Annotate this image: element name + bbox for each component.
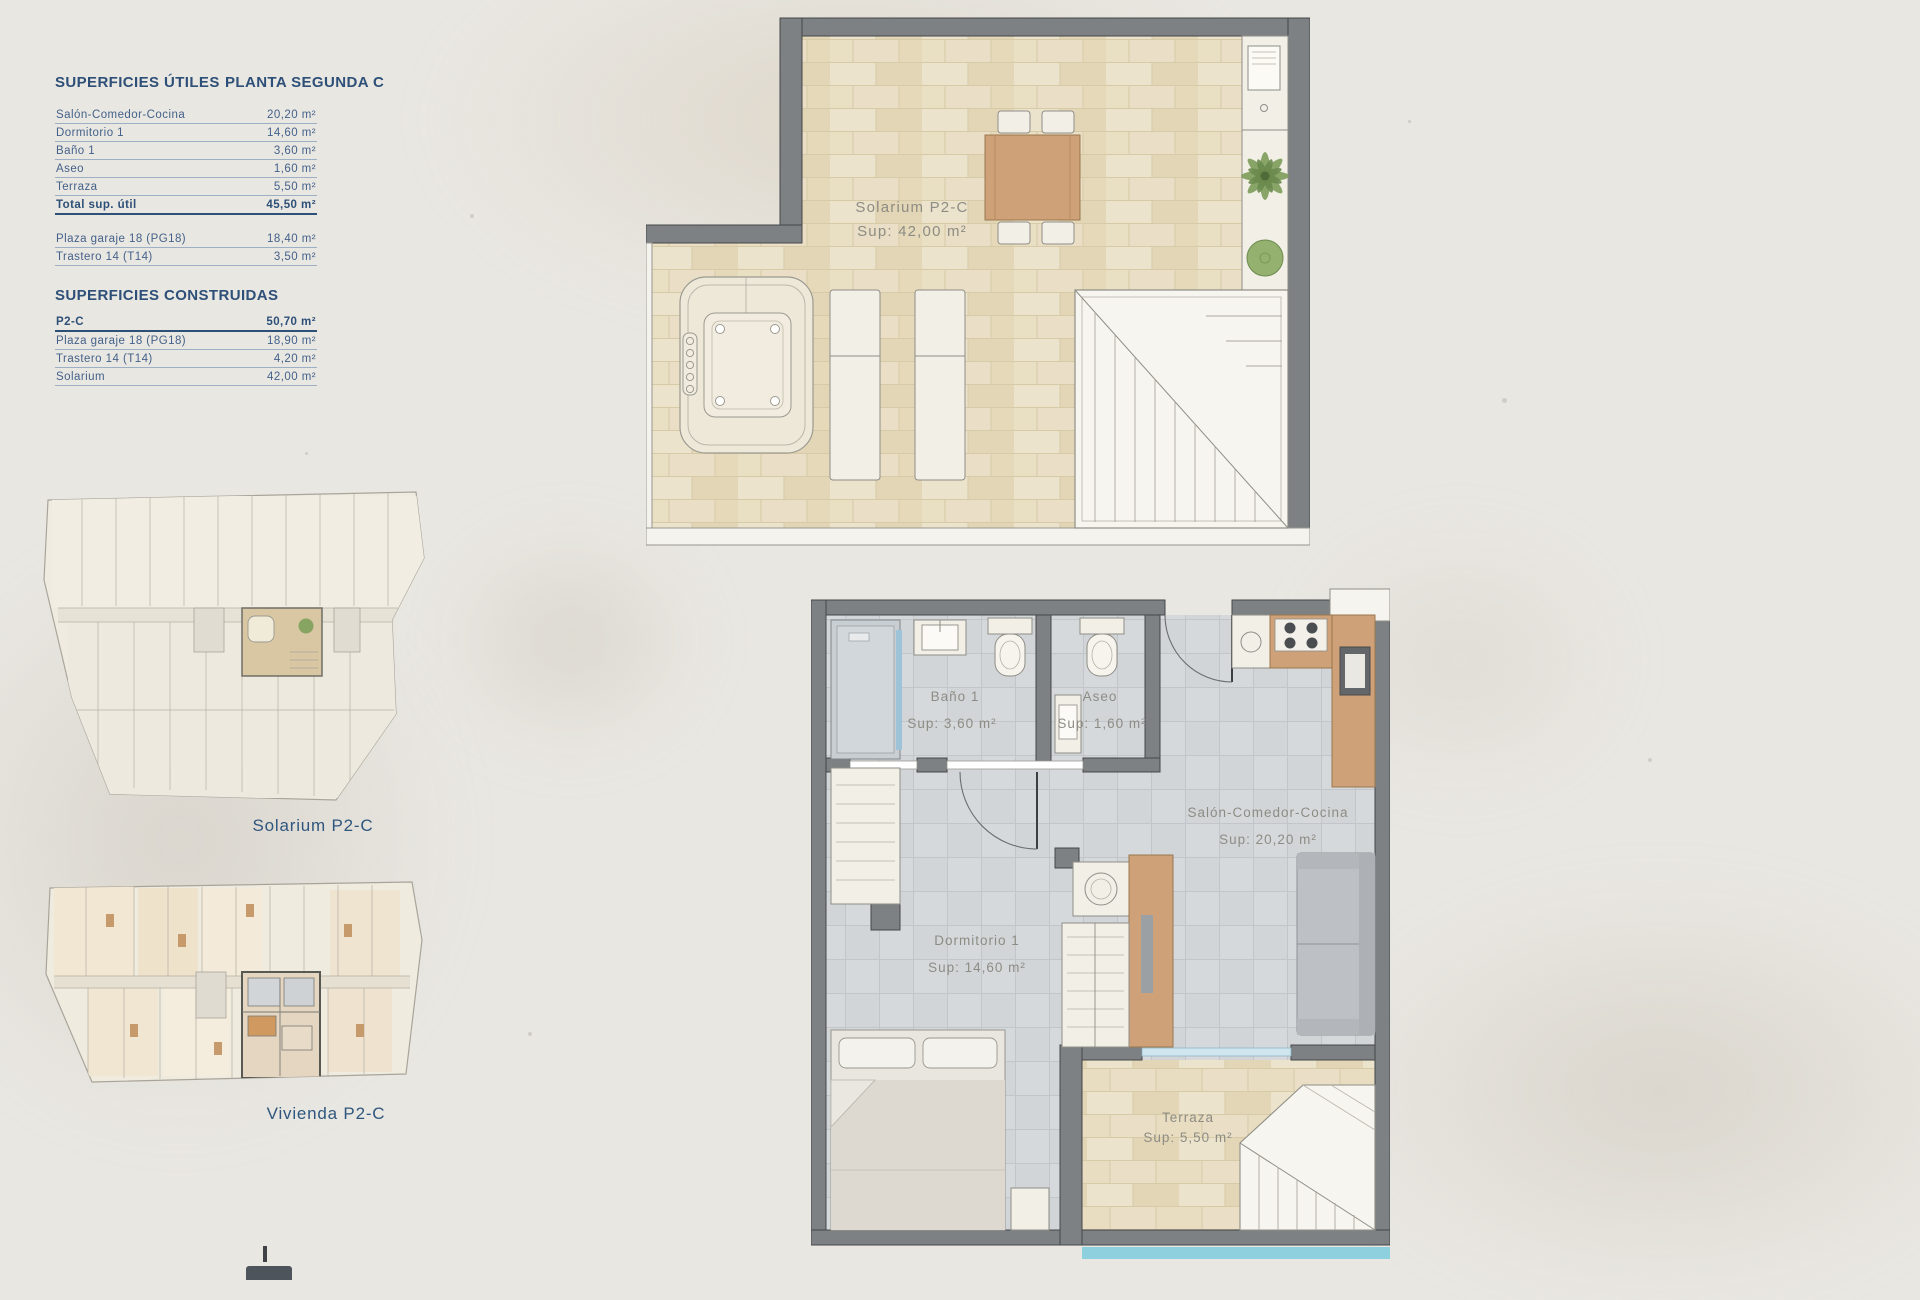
row-label: Terraza (56, 181, 98, 193)
wall (780, 18, 802, 243)
solarium-room-name: Solarium P2-C (855, 199, 968, 216)
stair-core (194, 608, 224, 652)
chair-icon (1042, 111, 1074, 133)
salon-room-name: Salón-Comedor-Cocina (1187, 805, 1348, 820)
staircase (1075, 290, 1288, 528)
speckle (305, 452, 308, 455)
row-value: 5,50 m² (274, 181, 316, 193)
area-row: Baño 1 3,60 m² (55, 142, 317, 160)
speckle (528, 1032, 532, 1036)
chair-icon (1042, 222, 1074, 244)
wall (1083, 758, 1160, 772)
row-label: P2-C (56, 316, 84, 328)
stair-core (334, 608, 360, 652)
table-title: SUPERFICIES ÚTILES (55, 74, 220, 91)
row-value: 3,60 m² (274, 145, 316, 157)
wall (1036, 615, 1051, 765)
row-value: 50,70 m² (266, 316, 316, 328)
bed (831, 1030, 1005, 1230)
bano-room-name: Baño 1 (931, 689, 980, 704)
chair-icon (998, 111, 1030, 133)
planter (1241, 130, 1289, 300)
cooktop (1270, 615, 1332, 668)
wall (811, 600, 1165, 615)
mini-plant-icon (299, 619, 314, 634)
area-row: Dormitorio 1 14,60 m² (55, 124, 317, 142)
salon-room-sup: Sup: 20,20 m² (1219, 832, 1317, 847)
row-value: 45,50 m² (266, 199, 316, 211)
parapet-wall (646, 528, 1310, 545)
aseo-room-sup: Sup: 1,60 m² (1057, 716, 1146, 731)
apartment-floorplan: Baño 1 Sup: 3,60 m² Aseo Sup: 1,60 m² Sa… (811, 585, 1390, 1280)
jet-icon (771, 325, 780, 334)
row-label: Aseo (56, 163, 84, 175)
shower-glass (896, 630, 902, 750)
terraza-room-sup: Sup: 5,50 m² (1143, 1130, 1232, 1145)
row-label: Trastero 14 (T14) (56, 251, 153, 263)
page-mark (263, 1246, 267, 1262)
row-value: 18,40 m² (267, 233, 316, 245)
wall (871, 904, 900, 930)
area-row: Trastero 14 (T14) 4,20 m² (55, 350, 317, 368)
hot-tub (680, 277, 813, 453)
mini-plan-vivienda-label: Vivienda P2-C (216, 1104, 436, 1124)
row-value: 20,20 m² (267, 109, 316, 121)
kitchen-island (1332, 615, 1375, 787)
speckle (1502, 398, 1507, 403)
sofa (1297, 853, 1375, 1035)
areas-table-header: SUPERFICIES ÚTILES PLANTA SEGUNDA C (55, 74, 385, 98)
pillow (839, 1038, 915, 1068)
plan-title: PLANTA SEGUNDA C (225, 74, 384, 91)
pool-edge (1082, 1247, 1390, 1259)
bush-plant-icon (1247, 240, 1283, 276)
wall (811, 1230, 1390, 1245)
row-value: 3,50 m² (274, 251, 316, 263)
area-row: Salón-Comedor-Cocina 20,20 m² (55, 106, 317, 124)
row-value: 14,60 m² (267, 127, 316, 139)
speckle (470, 214, 474, 218)
bedside-table (1011, 1188, 1049, 1230)
bano-room-sup: Sup: 3,60 m² (907, 716, 996, 731)
wall (1060, 1045, 1082, 1245)
palm-plant-icon (1241, 152, 1289, 200)
watercolor-wash (1320, 880, 1920, 1300)
shower (831, 620, 902, 759)
sideboard (1129, 855, 1173, 1047)
row-value: 1,60 m² (274, 163, 316, 175)
row-value: 4,20 m² (274, 353, 316, 365)
wall (811, 600, 826, 1245)
door-threshold (947, 761, 1083, 769)
wall (646, 225, 802, 243)
sliding-glass-door (1142, 1048, 1291, 1056)
built-areas-title: SUPERFICIES CONSTRUIDAS (55, 287, 317, 304)
mini-plan-solarium (38, 486, 428, 806)
highlighted-unit-vivienda (242, 972, 320, 1078)
terraza-room-name: Terraza (1162, 1110, 1214, 1125)
mini-hot-tub-icon (248, 616, 274, 642)
area-row: Trastero 14 (T14) 3,50 m² (55, 248, 317, 266)
area-row: Plaza garaje 18 (PG18) 18,40 m² (55, 230, 317, 248)
jet-icon (771, 397, 780, 406)
jet-icon (716, 325, 725, 334)
wall (1291, 1045, 1375, 1060)
wall (1288, 18, 1310, 545)
dormitorio-room-name: Dormitorio 1 (934, 933, 1020, 948)
row-label: Trastero 14 (T14) (56, 353, 153, 365)
tv-icon (1141, 915, 1153, 993)
areas-table: SUPERFICIES ÚTILES PLANTA SEGUNDA C Saló… (55, 74, 317, 386)
row-label: Plaza garaje 18 (PG18) (56, 233, 186, 245)
parapet-wall (646, 243, 652, 545)
area-row: Solarium 42,00 m² (55, 368, 317, 386)
wardrobe (831, 768, 900, 904)
dormitorio-room-sup: Sup: 14,60 m² (928, 960, 1026, 975)
wall (1375, 600, 1390, 1245)
row-label: Baño 1 (56, 145, 95, 157)
row-label: Salón-Comedor-Cocina (56, 109, 185, 121)
row-label: Solarium (56, 371, 105, 383)
row-value: 42,00 m² (267, 371, 316, 383)
total-row: Total sup. útil 45,50 m² (55, 196, 317, 215)
solarium-floorplan: Solarium P2-C Sup: 42,00 m² (646, 16, 1310, 548)
highlighted-unit-solarium (242, 608, 322, 676)
watercolor-wash (430, 520, 710, 760)
washing-machine (1073, 862, 1129, 916)
area-row: Aseo 1,60 m² (55, 160, 317, 178)
page-mark (246, 1266, 292, 1280)
area-row: Plaza garaje 18 (PG18) 18,90 m² (55, 332, 317, 350)
dining-table (985, 135, 1080, 220)
table-gap (55, 215, 317, 230)
row-value: 18,90 m² (267, 335, 316, 347)
speckle (1408, 120, 1411, 123)
pillow (923, 1038, 997, 1068)
kitchen-counter (1232, 615, 1270, 668)
row-label: Total sup. útil (56, 199, 137, 211)
row-label: Plaza garaje 18 (PG18) (56, 335, 186, 347)
jet-icon (716, 397, 725, 406)
wall (917, 758, 947, 772)
area-row: P2-C 50,70 m² (55, 313, 317, 332)
wall (1145, 615, 1160, 765)
aseo-room-name: Aseo (1083, 689, 1118, 704)
chair-icon (998, 222, 1030, 244)
sink (914, 620, 966, 655)
outdoor-kitchen (1242, 36, 1288, 130)
area-row: Terraza 5,50 m² (55, 178, 317, 196)
sun-lounger (915, 290, 965, 480)
solarium-room-sup: Sup: 42,00 m² (857, 223, 967, 240)
wardrobe (1062, 923, 1129, 1047)
wall (780, 18, 1310, 36)
stair-core (196, 972, 226, 1018)
mini-plan-solarium-label: Solarium P2-C (203, 816, 423, 836)
row-label: Dormitorio 1 (56, 127, 124, 139)
mini-plan-vivienda (38, 876, 428, 1092)
sun-lounger (830, 290, 880, 480)
speckle (1648, 758, 1652, 762)
